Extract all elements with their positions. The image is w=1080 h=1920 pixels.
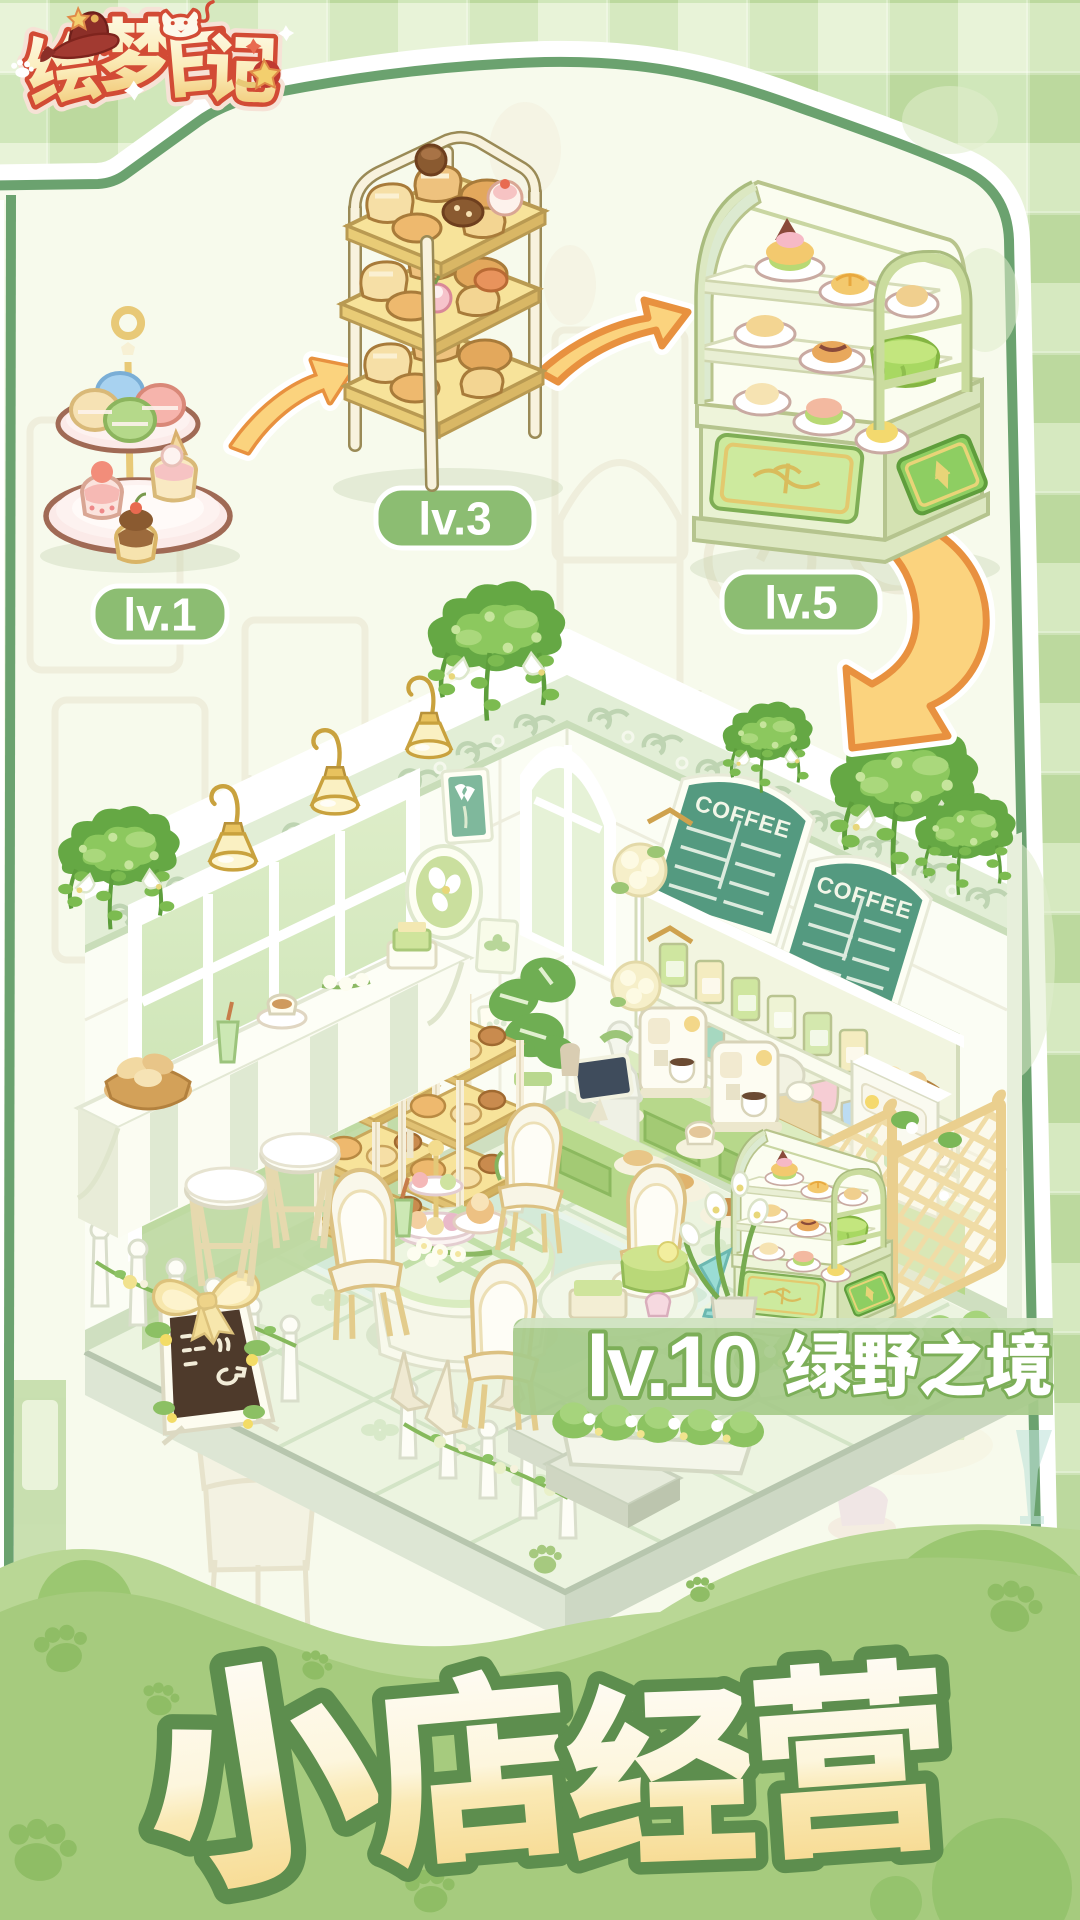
svg-text:lv.10: lv.10 — [586, 1319, 756, 1415]
svg-text:lv.3: lv.3 — [418, 493, 491, 545]
svg-text:lv.1: lv.1 — [123, 589, 196, 641]
svg-text:lv.5: lv.5 — [764, 577, 837, 629]
